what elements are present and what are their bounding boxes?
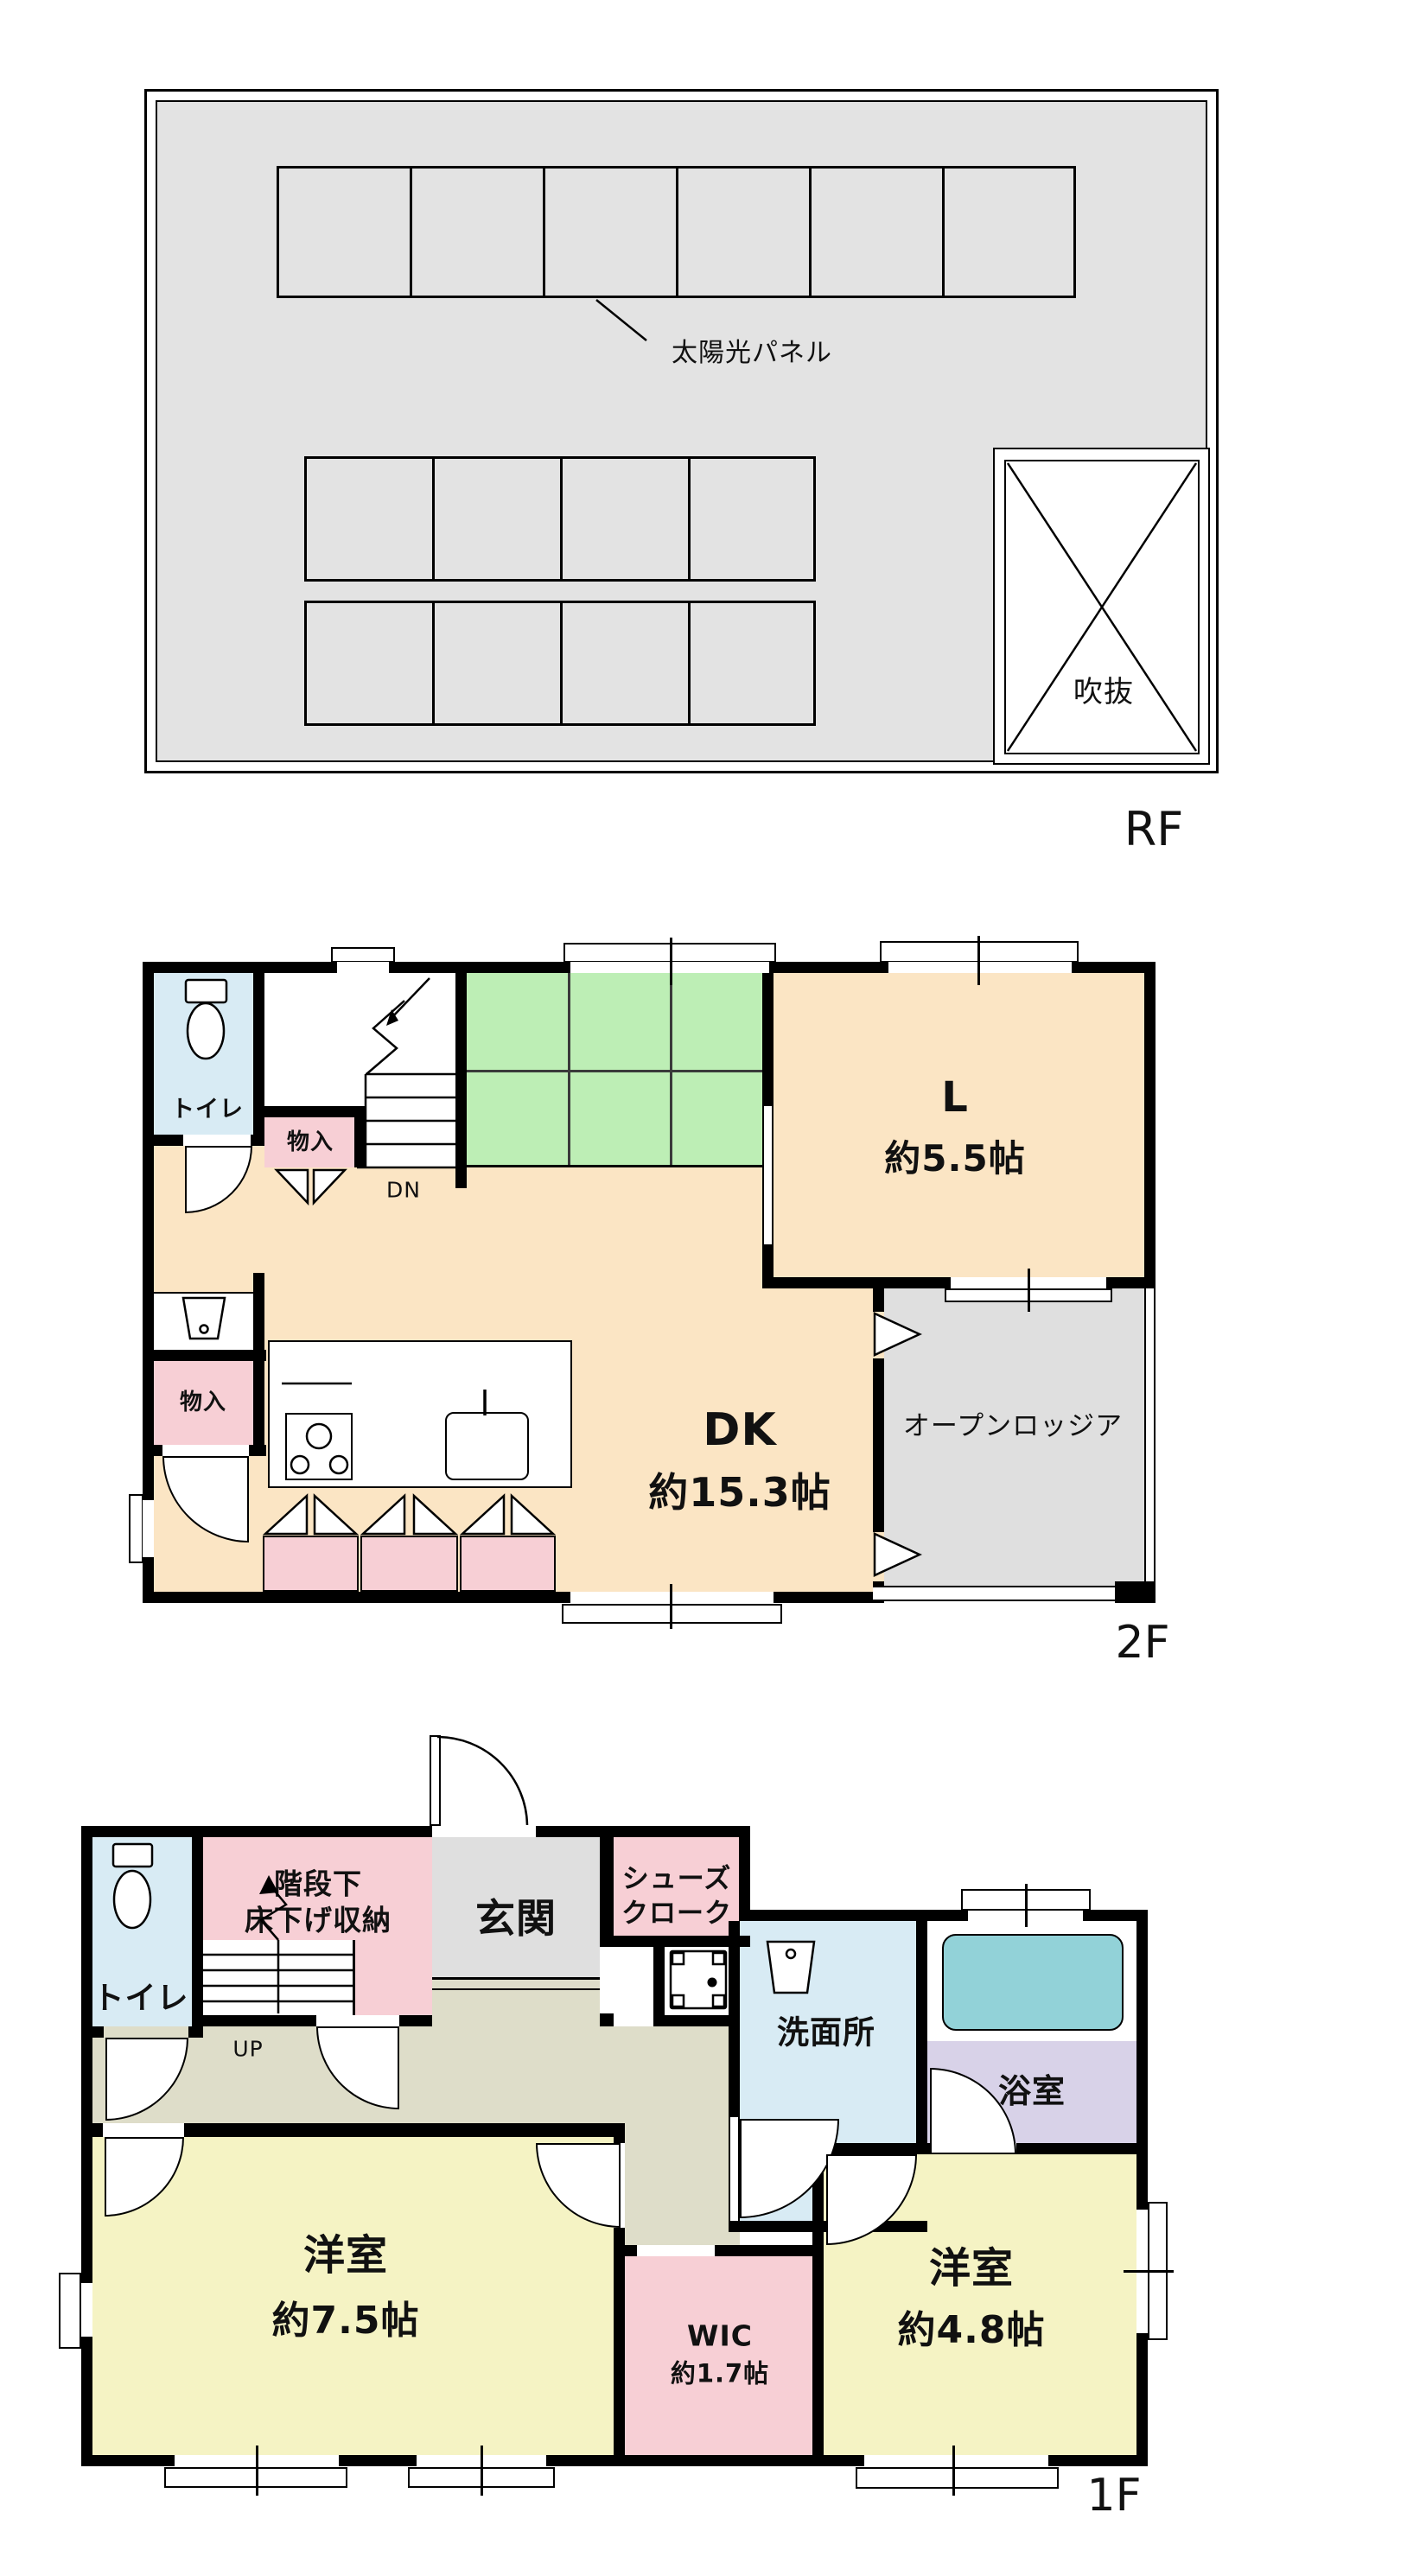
loggia-label: オープンロッジア [903, 1414, 1123, 1441]
cabinet [460, 1536, 556, 1592]
washroom-label: 洗面所 [777, 2017, 875, 2049]
window [59, 2273, 81, 2349]
wall [536, 1826, 750, 1837]
panel-divider [432, 459, 435, 579]
wall [812, 2143, 824, 2455]
wall [614, 2123, 625, 2143]
hall-1f [432, 1979, 600, 2026]
entrance-step-line [432, 1988, 600, 1990]
under-stair-label-2: 床下げ収納 [245, 1906, 392, 1935]
wall [154, 1350, 266, 1361]
void-label: 吹抜 [1073, 677, 1134, 707]
wall [715, 2245, 824, 2256]
wall [614, 2228, 625, 2455]
room-wic [625, 2256, 812, 2455]
entrance-label: 玄関 [475, 1899, 557, 1938]
cabinet [360, 1536, 458, 1592]
shoe-closet-label-2: クローク [621, 1901, 732, 1928]
loggia-pillar [1115, 1581, 1156, 1603]
entrance-door-leaf [430, 1735, 441, 1826]
wall [81, 1826, 92, 2466]
floor-label-1f: 1F [1087, 2473, 1142, 2518]
window-tick [977, 936, 980, 985]
wall [192, 1837, 203, 2038]
toilet-1f-label: トイレ [92, 1983, 188, 2014]
panel-divider [809, 169, 812, 296]
window-tick [256, 2446, 258, 2496]
dk-area-label: 約15.3帖 [648, 1472, 831, 1512]
hall-1f [92, 2026, 740, 2123]
washer-alcove [665, 1947, 729, 2015]
wall [253, 1350, 264, 1456]
wall-opening [762, 1106, 774, 1244]
wall [203, 2015, 316, 2026]
wall [762, 1277, 951, 1288]
cabinet [263, 1536, 359, 1592]
panel-divider [560, 459, 563, 579]
wall [81, 2123, 103, 2137]
wall [1144, 962, 1156, 1288]
bedroom-a-area-label: 約7.5帖 [272, 2302, 420, 2340]
sink-alcove-2f [154, 1294, 253, 1350]
wall [600, 2013, 614, 2026]
wic-area-label: 約1.7帖 [671, 2362, 769, 2387]
window [888, 962, 1072, 973]
room-tatami-corner [467, 973, 774, 1167]
wall [253, 973, 264, 1146]
toilet-2f-label: トイレ [171, 1098, 244, 1122]
loggia-rail-bottom [873, 1586, 1115, 1601]
wall [762, 973, 774, 1106]
stairs-up-label: UP [232, 2039, 263, 2060]
storage-upper-2f-label: 物入 [287, 1131, 334, 1154]
wall [184, 2123, 625, 2137]
panel-divider [560, 603, 563, 723]
bathtub [942, 1934, 1124, 2031]
window [143, 1500, 154, 1557]
window-tick [1025, 1884, 1028, 1927]
window-tick [952, 2446, 955, 2496]
door-opening [183, 1135, 251, 1146]
loggia-rail-right [1144, 1288, 1156, 1586]
wall [339, 2455, 417, 2466]
panel-divider [942, 169, 945, 296]
solar-panel-array-top [277, 166, 1076, 298]
wall [916, 1921, 927, 2143]
door-opening [162, 1445, 249, 1456]
window-tick [670, 938, 672, 985]
stair-area-1f [203, 1940, 354, 2015]
wall [873, 1358, 884, 1532]
wall [188, 2026, 203, 2038]
panel-divider [432, 603, 435, 723]
stairs-down-label: DN [386, 1180, 421, 1201]
living-area-label: 約5.5帖 [884, 1141, 1025, 1177]
wall [653, 2015, 740, 2026]
floor-section-rf: 太陽光パネル 吹抜 RF [0, 0, 1407, 907]
wall [546, 2455, 864, 2466]
wall [729, 1921, 740, 2117]
window-tick [1124, 2270, 1174, 2273]
hall-1f [625, 2123, 740, 2245]
wall [455, 973, 467, 1188]
wall [81, 1826, 432, 1837]
wall [92, 2026, 104, 2038]
solar-panel-array-mid [304, 456, 816, 582]
wic-name-label: WIC [687, 2322, 753, 2350]
wall [625, 2245, 637, 2256]
panel-divider [543, 169, 545, 296]
wall [1016, 2143, 1148, 2154]
wall [739, 1910, 968, 1921]
wall [81, 2455, 175, 2466]
wall [264, 1106, 357, 1117]
floor-label-2f: 2F [1116, 1620, 1170, 1665]
solar-panel-label: 太陽光パネル [672, 340, 832, 366]
floor-label-rf: RF [1124, 806, 1184, 853]
bathroom-label: 浴室 [998, 2075, 1066, 2108]
room-bedroom-a [92, 2137, 614, 2455]
wall [873, 1277, 884, 1312]
window [129, 1494, 143, 1563]
panel-divider [676, 169, 678, 296]
window [856, 2467, 1059, 2489]
window-tick [481, 2446, 483, 2496]
tatami-edge-line [467, 1165, 774, 1167]
wall [399, 2015, 432, 2026]
kitchen-sink [445, 1412, 529, 1480]
dk-name-label: DK [703, 1408, 776, 1453]
solar-panel-array-bottom [304, 601, 816, 726]
bedroom-a-name-label: 洋室 [303, 2235, 388, 2276]
panel-divider [410, 169, 412, 296]
panel-divider [688, 603, 691, 723]
window [331, 947, 395, 963]
void-inner [1004, 460, 1200, 754]
under-stair-storage-column [354, 1940, 432, 2015]
stove [285, 1413, 353, 1480]
entrance-door-arc [437, 1737, 527, 1825]
bedroom-b-area-label: 約4.8帖 [898, 2312, 1046, 2350]
panel-divider [688, 459, 691, 579]
wall [600, 1837, 614, 1947]
wall [354, 1106, 366, 1167]
entrance-step-line [432, 1977, 600, 1980]
window-tick [670, 1584, 672, 1629]
window [337, 962, 389, 973]
stair-divider [353, 1940, 355, 2015]
wall [1136, 1910, 1148, 2466]
storage-lower-2f-label: 物入 [180, 1391, 226, 1414]
wall [739, 1826, 750, 1921]
door-opening [729, 2117, 740, 2221]
under-stair-label-1: 階段下 [274, 1870, 362, 1899]
floor-plan-page: 太陽光パネル 吹抜 RF [0, 0, 1407, 2576]
shoe-closet-label-1: シューズ [622, 1867, 731, 1893]
living-name-label: L [941, 1077, 969, 1118]
alcove-edge-line [154, 1292, 253, 1294]
window [81, 2283, 92, 2337]
window-tick [1028, 1269, 1030, 1312]
wall [1106, 1277, 1156, 1288]
bedroom-b-name-label: 洋室 [929, 2248, 1014, 2289]
wall [1048, 2455, 1148, 2466]
wall [600, 1936, 750, 1947]
tatami-grid-line [467, 1070, 774, 1072]
